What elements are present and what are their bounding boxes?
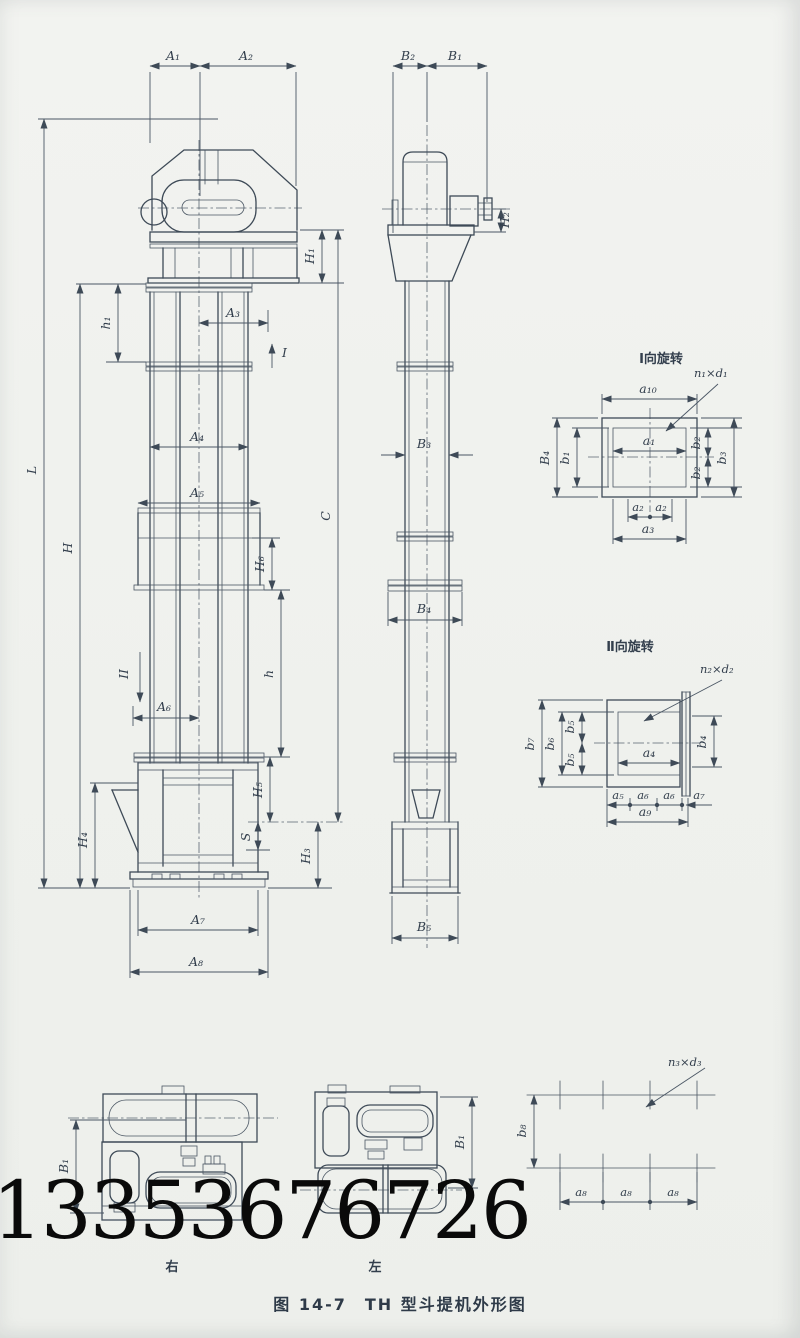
dim-L: L	[24, 466, 39, 475]
anchor-bolt-plan: n₃×d₃ b₈ a₈ a₈ a₈	[514, 1055, 715, 1210]
dim-b2-top: b₂	[688, 436, 703, 449]
foot-right-label: 右	[164, 1259, 178, 1275]
dim-A1: A₁	[165, 48, 180, 63]
front-head-housing	[141, 150, 299, 283]
bolt-crosses	[560, 1081, 697, 1182]
dim-a8-1: a₈	[575, 1185, 587, 1199]
anchor-bolt-note: n₃×d₃	[668, 1055, 702, 1069]
dim-A8: A₈	[188, 954, 203, 969]
dim-A7: A₇	[190, 912, 205, 927]
dim-B1-foot-right: B₁	[56, 1159, 71, 1174]
detail-I: I向旋转 n₁×d₁ a₁₀ a₁ B₄ b₁ b₂ b₂ b₃	[537, 351, 742, 544]
dim-a3: a₃	[642, 521, 654, 536]
detail-II: Ⅱ向旋转 n₂×d₂ b₇ b₆ b₅ b₅ a₄ b₄	[522, 639, 734, 827]
dim-b3: b₃	[714, 451, 729, 464]
dim-b1: b₁	[557, 451, 572, 464]
dim-C: C	[318, 511, 333, 521]
dim-a4: a₄	[643, 745, 655, 760]
dim-A2: A₂	[238, 48, 253, 63]
dim-a9: a₉	[639, 804, 651, 819]
detail-I-bolt-note: n₁×d₁	[694, 366, 728, 380]
dim-B1: B₁	[447, 48, 462, 63]
dim-H4: H₄	[75, 832, 90, 849]
dim-b7: b₇	[522, 737, 537, 750]
side-view	[382, 125, 510, 948]
foot-left-label: 左	[368, 1259, 381, 1275]
dim-H3: H₃	[298, 848, 313, 865]
dim-a2-right: a₂	[655, 500, 667, 514]
dim-B4-side: B₄	[416, 601, 431, 616]
foot-view-left: B₁ 左	[300, 1085, 478, 1275]
front-view	[112, 140, 302, 900]
dim-B2: B₂	[400, 48, 415, 63]
dim-a8-2: a₈	[620, 1185, 632, 1199]
dim-A5: A₅	[189, 485, 204, 500]
detail-I-title: I向旋转	[639, 351, 683, 367]
dim-a2-left: a₂	[632, 500, 644, 514]
dim-b6: b₆	[542, 737, 557, 750]
view-arrow-II-label: II	[116, 668, 131, 680]
dim-a5: a₅	[612, 788, 624, 802]
dim-B1-foot-left: B₁	[452, 1135, 467, 1150]
side-boot	[390, 822, 460, 893]
dim-B3: B₃	[416, 436, 431, 451]
dim-b5-top: b₅	[562, 720, 577, 733]
scanned-drawing-page: A₁ A₂ L H h₁ H₄ H₁ C A₃ I A₄	[0, 0, 800, 1338]
dim-a6-right: a₆	[663, 788, 675, 802]
dim-A4: A₄	[189, 429, 204, 444]
front-boot	[112, 763, 268, 887]
dim-b5-bottom: b₅	[562, 753, 577, 766]
dim-a6-left: a₆	[637, 788, 649, 802]
dim-H: H	[60, 541, 75, 554]
dim-H1: H₁	[302, 248, 317, 265]
detail-II-title: Ⅱ向旋转	[606, 639, 654, 655]
dim-A3: A₃	[225, 305, 240, 320]
dim-A6: A₆	[156, 699, 171, 714]
side-head	[388, 152, 492, 281]
dim-B5: B₅	[416, 919, 431, 934]
foot-view-right: B₁ 右	[56, 1086, 278, 1275]
view-arrow-I-label: I	[281, 345, 288, 360]
dim-h: h	[261, 670, 276, 678]
dim-b2-bottom: b₂	[688, 466, 703, 479]
figure-caption: 图 14-7 TH 型斗提机外形图	[273, 1295, 527, 1314]
dim-H5: H₅	[250, 782, 265, 799]
dim-B4-flange: B₄	[537, 451, 552, 466]
dim-b8: b₈	[514, 1124, 529, 1137]
dim-a8-3: a₈	[667, 1185, 679, 1199]
detail-II-bolt-note: n₂×d₂	[700, 662, 734, 676]
bucket-elevator-drawing: A₁ A₂ L H h₁ H₄ H₁ C A₃ I A₄	[0, 0, 800, 1338]
dim-S: S	[238, 833, 253, 842]
dim-H6: H₆	[252, 556, 267, 573]
dim-a7: a₇	[693, 788, 705, 802]
dim-b4: b₄	[694, 735, 709, 748]
side-casing	[388, 281, 462, 822]
dim-a10: a₁₀	[639, 381, 656, 396]
dim-a1: a₁	[643, 433, 655, 448]
dim-H2: H₂	[497, 212, 512, 229]
dim-h1: h₁	[98, 316, 113, 329]
